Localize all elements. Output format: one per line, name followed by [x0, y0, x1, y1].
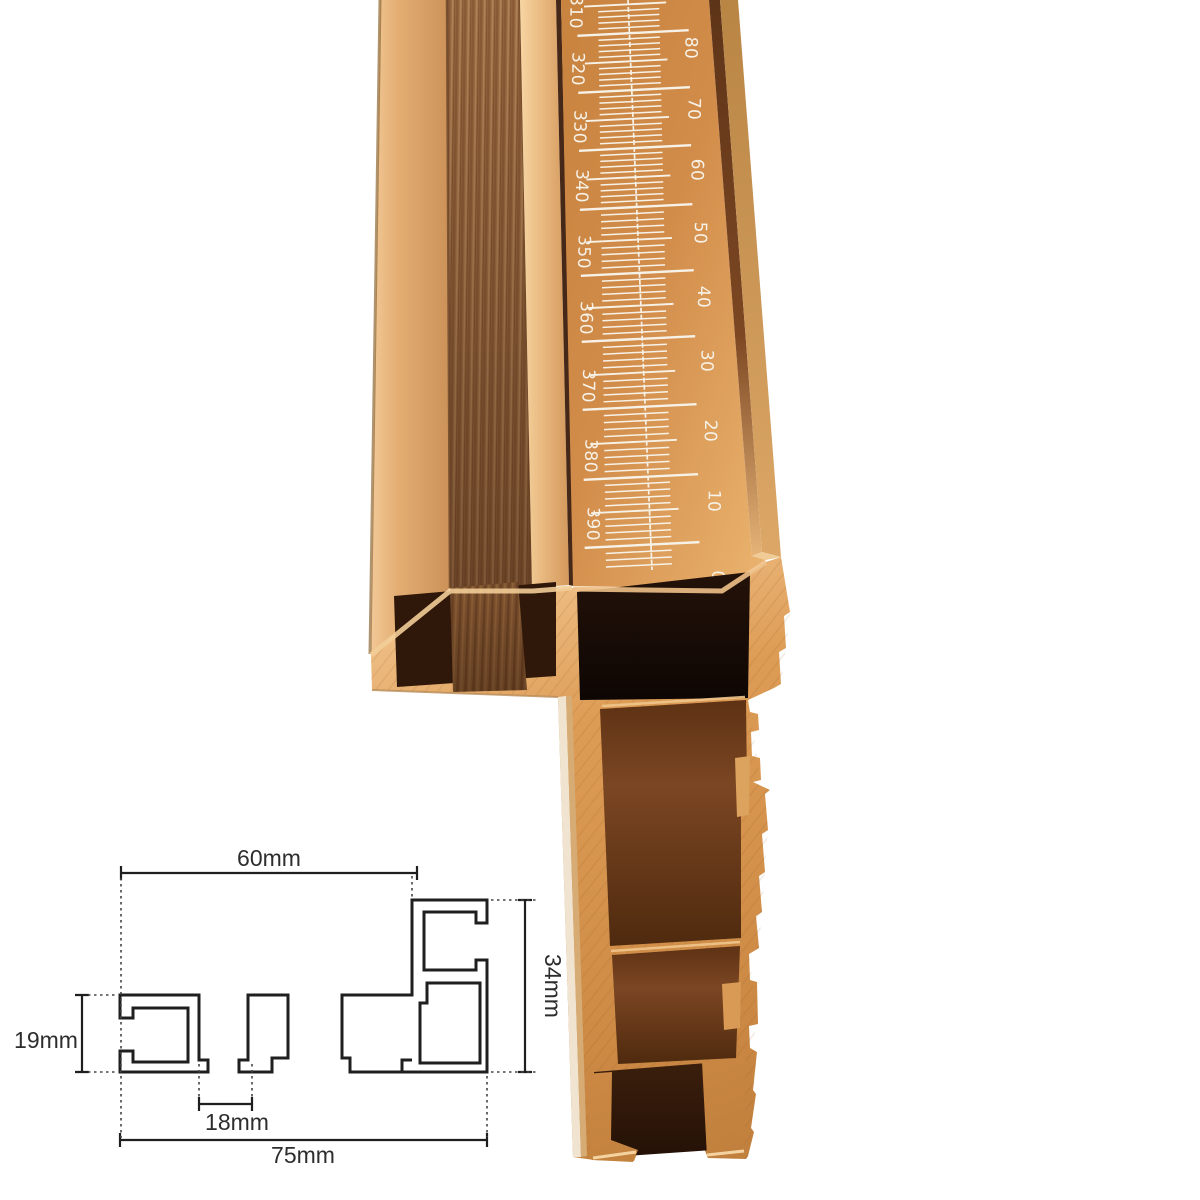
ruler-number-left: 330: [569, 110, 590, 144]
gold-tab-lower: [722, 982, 741, 1030]
gold-tab-upper: [735, 756, 750, 817]
ruler-number-left: 380: [580, 439, 601, 473]
profile-middle-block: [239, 995, 288, 1072]
dim-label-slot-width: 18mm: [205, 1109, 269, 1135]
top-t-slot-channel-shade: [447, 0, 532, 588]
ruler-number-right: 10: [703, 490, 723, 513]
upper-brown-chamber: [600, 700, 747, 946]
ruler-number-right: 50: [690, 222, 710, 245]
dim-label-right-height: 34mm: [540, 954, 566, 1018]
bottom-right-leg: [702, 1058, 746, 1157]
ruler-number-right: 60: [686, 159, 706, 182]
dim-label-left-height: 19mm: [14, 1027, 78, 1053]
ruler-number-right: 80: [680, 37, 700, 60]
product-photo-aluminum-t-track: 3103203303403503603703803908070605040302…: [0, 0, 1200, 1200]
profile-left-block: [120, 995, 208, 1072]
photo-canvas: 3103203303403503603703803908070605040302…: [0, 0, 1200, 1200]
cross-section-diagram: 60mm 34mm 19mm 18mm 75mm: [14, 845, 566, 1168]
ruler-number-left: 310: [565, 0, 586, 29]
ruler-number-left: 340: [571, 169, 592, 203]
ruler-number-left: 360: [575, 301, 596, 335]
ruler-number-right: 70: [683, 98, 703, 121]
ruler-number-left: 370: [578, 369, 599, 403]
dim-label-top-width: 60mm: [237, 845, 301, 871]
ruler-number-right: 20: [700, 420, 720, 443]
ruler-number-left: 320: [567, 52, 588, 86]
ruler-number-right: 40: [693, 286, 713, 309]
ruler-number-right: 30: [696, 350, 716, 373]
left-side-face: [371, 0, 450, 655]
profile-inner-cavity: [420, 983, 480, 1063]
lower-brown-chamber: [612, 946, 740, 1064]
dim-label-total-width: 75mm: [271, 1142, 335, 1168]
ruler-number-left: 350: [573, 235, 594, 269]
ruler-number-left: 390: [582, 507, 603, 541]
profile-notch-lines: [402, 1060, 412, 1072]
profile-outline: [120, 900, 487, 1072]
extrusion-bar: 3103203303403503603703803908070605040302…: [370, 0, 781, 655]
profile-right-block: [342, 900, 487, 1072]
t-slot-floor-shade: [450, 582, 527, 692]
